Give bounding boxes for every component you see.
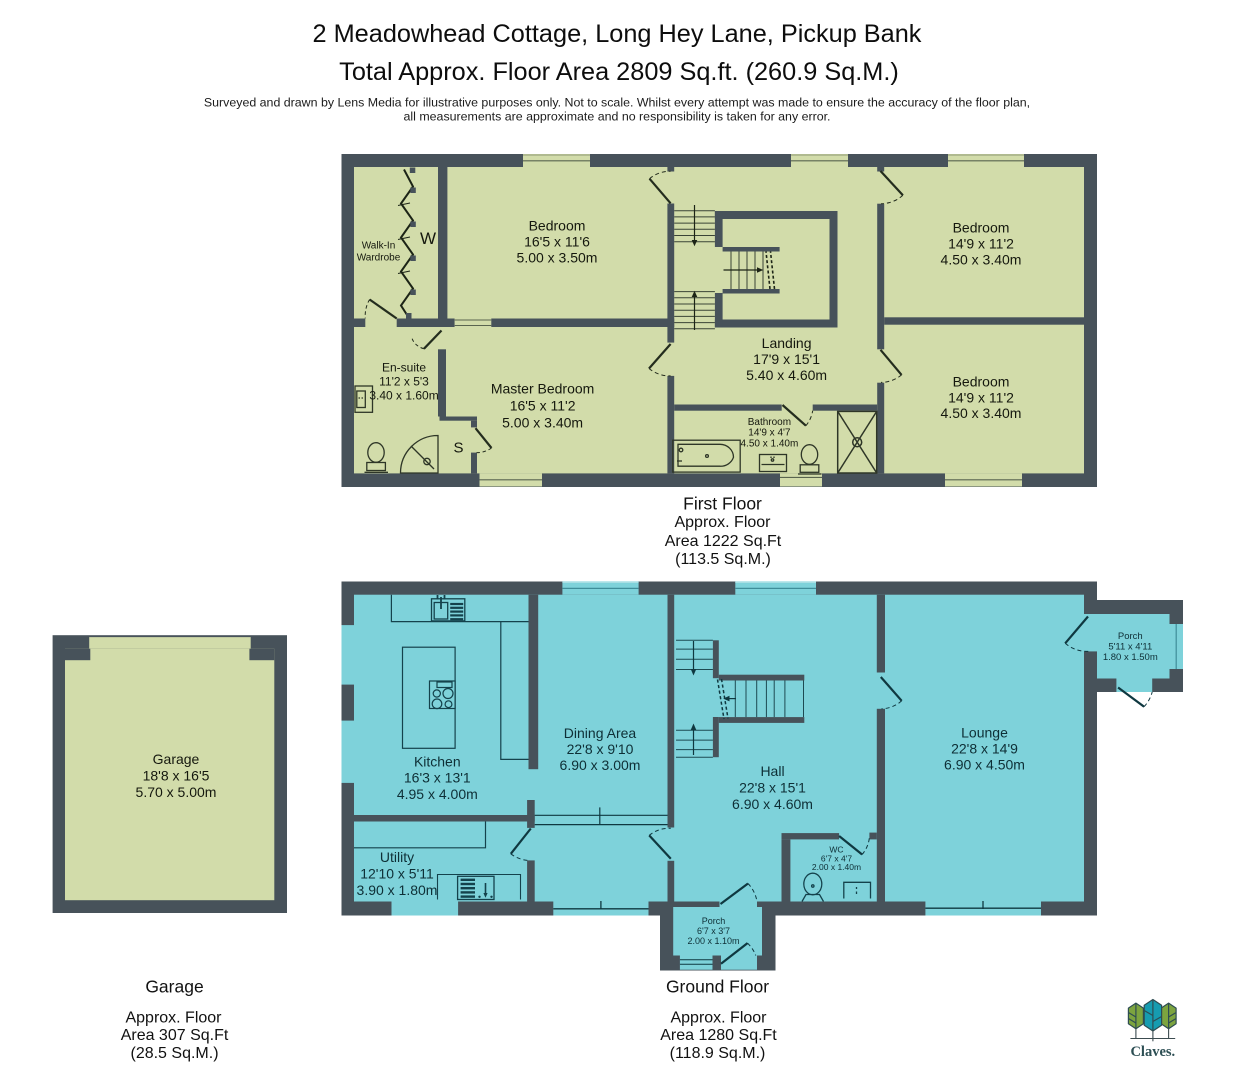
svg-text:16'3 x 13'1: 16'3 x 13'1 bbox=[404, 770, 471, 786]
svg-text:2.00 x 1.40m: 2.00 x 1.40m bbox=[812, 862, 861, 872]
svg-text:Bathroom: Bathroom bbox=[748, 417, 791, 428]
svg-text:4.95 x 4.00m: 4.95 x 4.00m bbox=[397, 786, 478, 802]
svg-text:Dining Area: Dining Area bbox=[564, 725, 637, 741]
svg-text:5.00 x 3.50m: 5.00 x 3.50m bbox=[517, 250, 598, 266]
svg-text:Utility: Utility bbox=[380, 849, 414, 865]
svg-text:6.90 x 4.50m: 6.90 x 4.50m bbox=[944, 757, 1025, 773]
svg-text:22'8 x 9'10: 22'8 x 9'10 bbox=[567, 741, 634, 757]
svg-text:(118.9 Sq.M.): (118.9 Sq.M.) bbox=[670, 1045, 766, 1062]
svg-text:3.90 x 1.80m: 3.90 x 1.80m bbox=[357, 882, 438, 898]
svg-text:Porch: Porch bbox=[702, 916, 726, 926]
svg-text:Lounge: Lounge bbox=[961, 725, 1008, 741]
svg-text:Garage: Garage bbox=[145, 977, 203, 997]
svg-text:5.70 x 5.00m: 5.70 x 5.00m bbox=[136, 784, 217, 800]
svg-text:Master Bedroom: Master Bedroom bbox=[491, 380, 594, 396]
svg-text:Approx. Floor: Approx. Floor bbox=[674, 514, 771, 531]
svg-text:S: S bbox=[453, 440, 463, 457]
svg-text:Hall: Hall bbox=[760, 763, 784, 779]
svg-text:Approx. Floor: Approx. Floor bbox=[670, 1009, 767, 1026]
svg-text:14'9 x 11'2: 14'9 x 11'2 bbox=[948, 235, 1014, 251]
svg-text:Surveyed and drawn by Lens Med: Surveyed and drawn by Lens Media for ill… bbox=[204, 96, 1030, 110]
svg-text:4.50 x 1.40m: 4.50 x 1.40m bbox=[740, 438, 798, 449]
svg-text:6.90 x 3.00m: 6.90 x 3.00m bbox=[560, 757, 641, 773]
svg-text:Bedroom: Bedroom bbox=[953, 220, 1010, 236]
svg-text:Approx. Floor: Approx. Floor bbox=[125, 1009, 222, 1026]
svg-text:Area 307 Sq.Ft: Area 307 Sq.Ft bbox=[121, 1027, 229, 1044]
svg-text:En-suite: En-suite bbox=[382, 360, 426, 374]
svg-text:6.90 x 4.60m: 6.90 x 4.60m bbox=[732, 796, 813, 812]
svg-text:18'8 x 16'5: 18'8 x 16'5 bbox=[143, 768, 210, 784]
svg-text:all measurements are approxima: all measurements are approximate and no … bbox=[404, 110, 831, 124]
svg-text:Area 1222 Sq.Ft: Area 1222 Sq.Ft bbox=[665, 533, 782, 550]
svg-text:Walk-In: Walk-In bbox=[362, 240, 396, 251]
svg-text:4.50 x 3.40m: 4.50 x 3.40m bbox=[941, 405, 1022, 421]
svg-text:3.40 x 1.60m: 3.40 x 1.60m bbox=[369, 389, 438, 403]
svg-text:2 Meadowhead Cottage, Long Hey: 2 Meadowhead Cottage, Long Hey Lane, Pic… bbox=[313, 20, 922, 48]
svg-text:16'5 x 11'6: 16'5 x 11'6 bbox=[524, 234, 590, 250]
svg-text:6'7 x 3'7: 6'7 x 3'7 bbox=[697, 926, 730, 936]
svg-text:Porch: Porch bbox=[1118, 631, 1143, 642]
svg-text:5.40 x 4.60m: 5.40 x 4.60m bbox=[746, 367, 827, 383]
svg-text:Area 1280 Sq.Ft: Area 1280 Sq.Ft bbox=[660, 1027, 777, 1044]
svg-text:14'9 x 11'2: 14'9 x 11'2 bbox=[948, 389, 1014, 405]
svg-text:5'11 x 4'11: 5'11 x 4'11 bbox=[1108, 642, 1152, 653]
svg-text:Bedroom: Bedroom bbox=[529, 218, 586, 234]
svg-text:14'9 x 4'7: 14'9 x 4'7 bbox=[748, 428, 791, 439]
svg-text:(113.5 Sq.M.): (113.5 Sq.M.) bbox=[675, 551, 771, 568]
svg-text:1.80 x 1.50m: 1.80 x 1.50m bbox=[1103, 652, 1158, 663]
svg-text:Wardrobe: Wardrobe bbox=[357, 252, 401, 263]
svg-text:11'2 x 5'3: 11'2 x 5'3 bbox=[379, 375, 429, 389]
svg-text:22'8 x 15'1: 22'8 x 15'1 bbox=[739, 780, 806, 796]
svg-text:Ground Floor: Ground Floor bbox=[666, 977, 769, 997]
svg-text:17'9 x 15'1: 17'9 x 15'1 bbox=[753, 351, 820, 367]
svg-text:5.00 x 3.40m: 5.00 x 3.40m bbox=[502, 414, 583, 430]
svg-text:4.50 x 3.40m: 4.50 x 3.40m bbox=[941, 251, 1022, 267]
svg-text:Garage: Garage bbox=[153, 751, 200, 767]
svg-text:First Floor: First Floor bbox=[683, 494, 762, 514]
svg-text:2.00 x 1.10m: 2.00 x 1.10m bbox=[687, 936, 739, 946]
svg-text:22'8 x 14'9: 22'8 x 14'9 bbox=[951, 741, 1018, 757]
svg-text:Kitchen: Kitchen bbox=[414, 754, 461, 770]
svg-text:12'10 x 5'11: 12'10 x 5'11 bbox=[360, 866, 434, 882]
svg-text:Landing: Landing bbox=[762, 335, 812, 351]
svg-text:Bedroom: Bedroom bbox=[953, 373, 1010, 389]
svg-text:16'5 x 11'2: 16'5 x 11'2 bbox=[510, 397, 576, 413]
svg-text:W: W bbox=[420, 229, 436, 248]
svg-text:Total Approx. Floor Area 2809: Total Approx. Floor Area 2809 Sq.ft. (26… bbox=[339, 58, 899, 86]
svg-text:(28.5 Sq.M.): (28.5 Sq.M.) bbox=[130, 1045, 218, 1062]
svg-text:Claves.: Claves. bbox=[1130, 1044, 1175, 1060]
